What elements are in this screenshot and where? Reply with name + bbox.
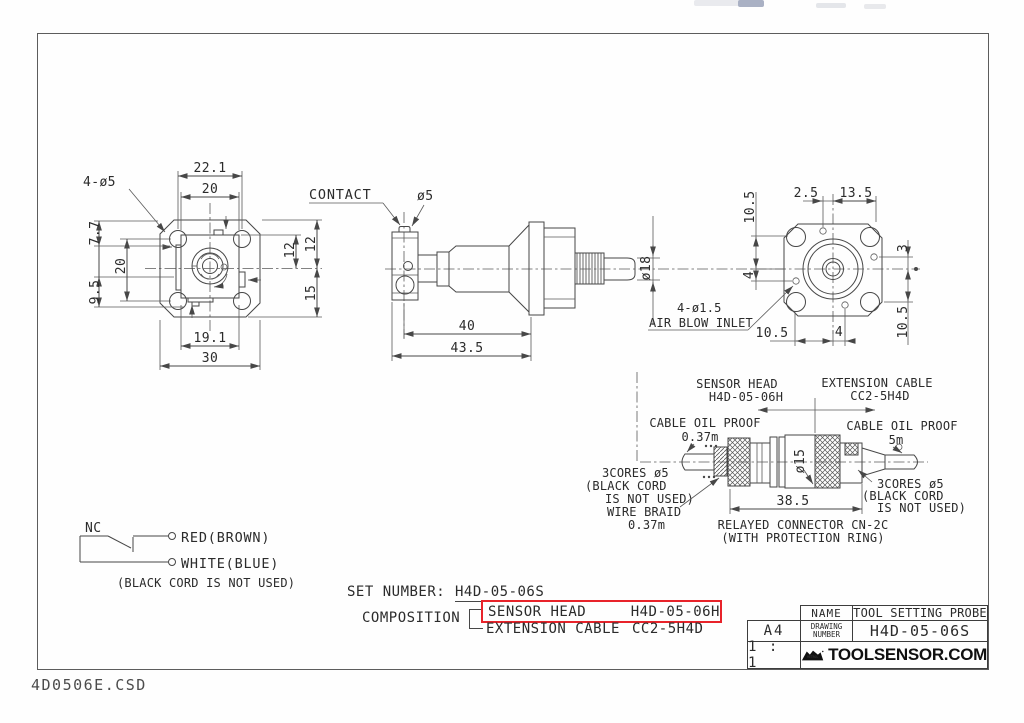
brand-cell: METROL TOOLSENSOR.COM [800, 641, 988, 669]
hole-callout-label: 4-ø5 [83, 175, 116, 190]
wiring-schematic: NC RED(BROWN) WHITE(BLUE) (BLACK CORD IS… [80, 521, 295, 590]
brand-site: TOOLSENSOR.COM [828, 645, 987, 665]
dim-3: 3 [896, 244, 911, 252]
wire2-label: WHITE(BLUE) [181, 556, 279, 572]
scale-cell: 1 : 1 [747, 641, 801, 669]
sensor-head-highlight: SENSOR HEAD H4D-05-06H [481, 600, 722, 623]
composition-item2-name: EXTENSION CABLE [486, 621, 632, 637]
dim-10-5-left: 10.5 [743, 191, 758, 224]
dim-40: 40 [459, 319, 475, 334]
dim-12-outer: 12 [304, 236, 319, 252]
air-blow-label: AIR BLOW INLET [649, 316, 753, 330]
left-oil-proof-label: CABLE OIL PROOF [649, 416, 760, 430]
dim-dia-15: ø15 [793, 449, 808, 474]
dim-7-7: 7.7 [88, 221, 103, 246]
composition-item2-model: CC2-5H4D [632, 621, 703, 637]
front-view: 4-ø5 22.1 20 19.1 30 7.7 9.5 20 [83, 161, 322, 370]
right-oil-proof-label: CABLE OIL PROOF [846, 419, 957, 433]
right-cable-length: 5m [889, 433, 904, 447]
contact-dia-label: ø5 [417, 189, 433, 204]
composition-item1-name: SENSOR HEAD [483, 604, 631, 620]
metrol-logo: METROL [801, 644, 824, 667]
wire1-label: RED(BROWN) [181, 530, 270, 546]
title-name-value: TOOL SETTING PROBE [852, 605, 988, 621]
dim-4-left: 4 [742, 271, 757, 279]
dim-9-5: 9.5 [88, 280, 103, 305]
drawing-number-label: DRAWING NUMBER [800, 620, 853, 642]
dim-20-top: 20 [202, 182, 218, 197]
wire-braid-label: WIRE BRAID [607, 505, 681, 519]
relay-connector-label: RELAYED CONNECTOR CN-2C [718, 518, 889, 532]
dim-19-1: 19.1 [194, 331, 227, 346]
dim-4-bottom: 4 [835, 325, 843, 340]
right-cores-note2: IS NOT USED) [877, 501, 966, 515]
wire-braid-length: 0.37m [628, 518, 665, 532]
dim-15: 15 [304, 285, 319, 301]
left-cores-note2: IS NOT USED) [605, 492, 694, 506]
drawing-sheet: 4-ø5 22.1 20 19.1 30 7.7 9.5 20 [0, 0, 1024, 723]
svg-text:METROL: METROL [807, 655, 818, 659]
file-name: 4D0506E.CSD [31, 676, 147, 694]
relay-connector-note: (WITH PROTECTION RING) [721, 531, 884, 545]
composition-label: COMPOSITION [362, 610, 460, 626]
sensor-head-model: H4D-05-06H [709, 390, 783, 404]
rear-view: 2.5 13.5 10.5 4 3 10.5 10.5 [648, 186, 918, 346]
contact-label: CONTACT [309, 187, 372, 203]
left-cores-note1: (BLACK CORD [585, 479, 667, 493]
dim-22-1: 22.1 [194, 161, 227, 176]
dim-10-5-bottom: 10.5 [756, 326, 789, 341]
dim-dia-18: ø18 [639, 256, 654, 281]
dim-2-5: 2.5 [794, 186, 819, 201]
dim-20-left: 20 [114, 258, 129, 274]
extension-cable-model: CC2-5H4D [850, 389, 909, 403]
dim-12-inner: 12 [283, 242, 298, 258]
dim-13-5: 13.5 [840, 186, 873, 201]
extension-cable-label: EXTENSION CABLE [821, 376, 932, 390]
left-cores-label: 3CORES ø5 [602, 466, 669, 480]
set-number-value: H4D-05-06S [455, 584, 548, 600]
set-number-label: SET NUMBER: [347, 584, 445, 600]
air-hole-callout: 4-ø1.5 [677, 301, 722, 315]
composition-item1-model: H4D-05-06H [631, 604, 720, 620]
composition-item2: EXTENSION CABLE CC2-5H4D [486, 621, 726, 637]
drawing-number-value: H4D-05-06S [852, 620, 988, 642]
dim-30: 30 [202, 351, 218, 366]
left-cable-length: 0.37m [681, 430, 718, 444]
sensor-head-label: SENSOR HEAD [696, 377, 778, 391]
nc-label: NC [85, 521, 101, 536]
dim-10-5-right: 10.5 [896, 306, 911, 339]
title-name-label: NAME [800, 605, 853, 621]
black-cord-note: (BLACK CORD IS NOT USED) [117, 576, 295, 590]
cable-assembly: ø15 SENSOR HEAD H4D-05-06H EXTENSION CAB… [585, 372, 966, 545]
dim-38-5: 38.5 [777, 494, 810, 509]
dim-43-5: 43.5 [451, 341, 484, 356]
